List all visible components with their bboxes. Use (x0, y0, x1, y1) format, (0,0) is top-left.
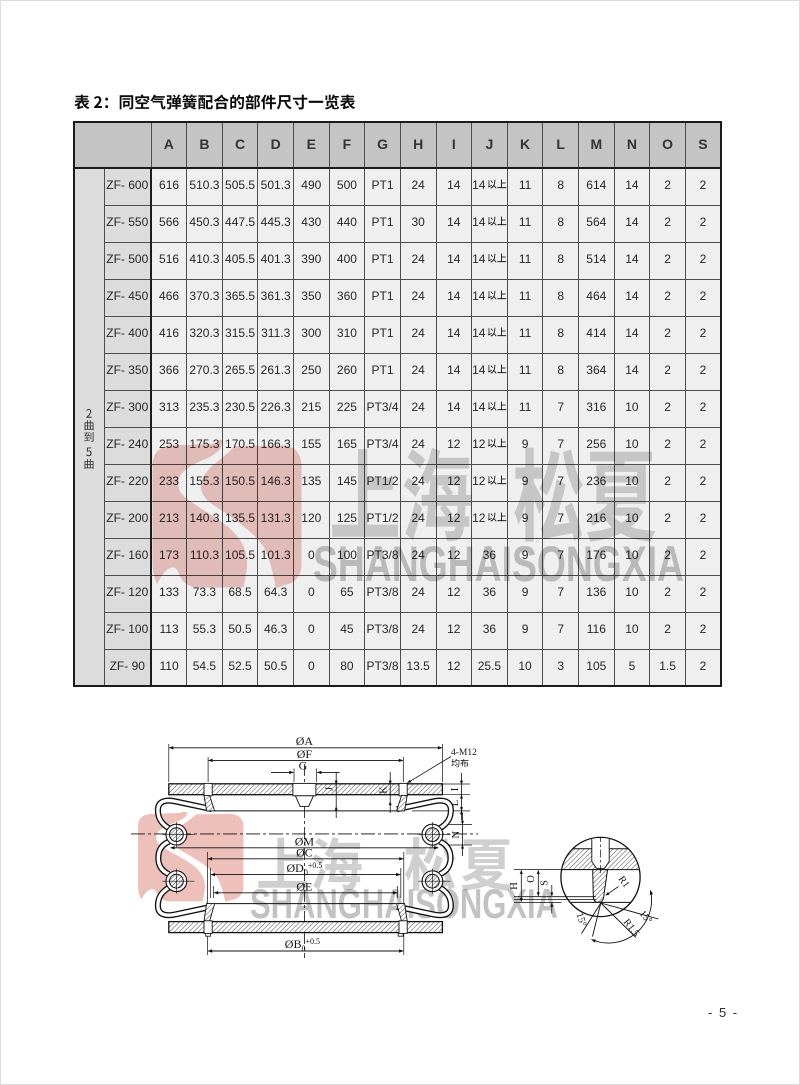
svg-text:N: N (451, 830, 462, 838)
svg-text:S: S (539, 880, 550, 886)
svg-text:O: O (526, 875, 537, 883)
svg-text:I: I (450, 787, 461, 791)
svg-text:ØC: ØC (296, 845, 313, 859)
svg-text:ØB0+0.5: ØB0+0.5 (285, 937, 320, 953)
svg-text:J: J (325, 787, 336, 791)
svg-text:15°: 15° (637, 908, 654, 926)
svg-text:4-M12: 4-M12 (451, 748, 477, 758)
svg-text:H: H (509, 882, 520, 890)
svg-text:ØE: ØE (296, 879, 312, 893)
svg-text:K: K (379, 786, 390, 794)
svg-text:R1.5: R1.5 (621, 917, 641, 939)
svg-text:G: G (299, 759, 308, 773)
svg-text:SHANGHAISONGXIA: SHANGHAISONGXIA (313, 538, 684, 588)
